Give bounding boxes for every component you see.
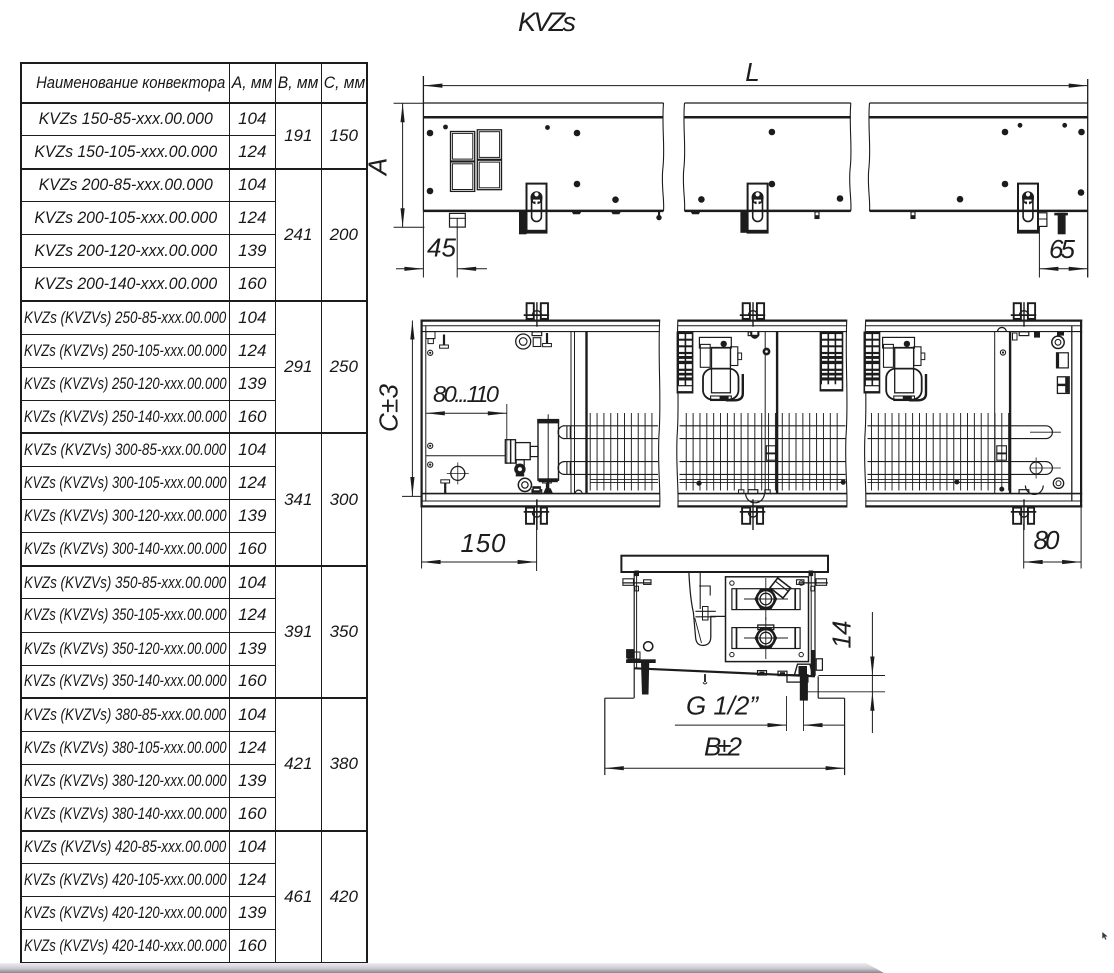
svg-text:14: 14 — [827, 621, 857, 649]
svg-text:65: 65 — [1049, 234, 1076, 264]
svg-text:G 1/2”: G 1/2” — [686, 691, 759, 721]
svg-text:B±2: B±2 — [704, 732, 743, 762]
svg-text:C±3: C±3 — [374, 383, 404, 432]
svg-text:150: 150 — [461, 528, 507, 558]
svg-text:80: 80 — [1034, 525, 1061, 555]
svg-text:45: 45 — [427, 233, 457, 263]
svg-text:A: A — [363, 158, 393, 177]
svg-text:KVZs: KVZs — [518, 7, 576, 37]
svg-text:80...110: 80...110 — [433, 381, 499, 407]
svg-text:L: L — [745, 57, 759, 87]
